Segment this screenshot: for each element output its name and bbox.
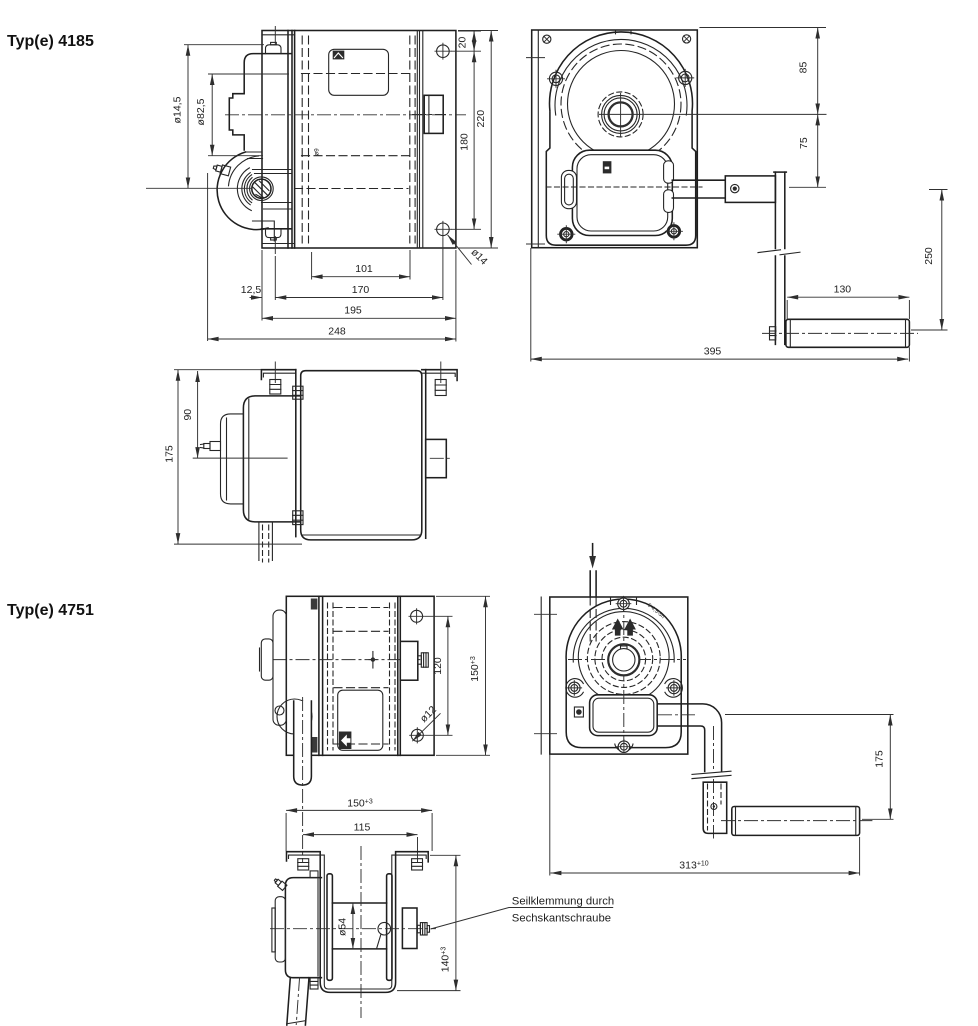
svg-text:101: 101: [355, 263, 373, 275]
svg-text:Sechskantschraube: Sechskantschraube: [512, 913, 611, 925]
svg-text:150+3: 150+3: [469, 656, 481, 682]
svg-text:Typ(e) 4185: Typ(e) 4185: [7, 33, 94, 50]
svg-text:ø9: ø9: [314, 148, 321, 156]
svg-text:20: 20: [457, 37, 469, 49]
svg-text:90: 90: [182, 409, 194, 421]
svg-text:ø14,5: ø14,5: [172, 96, 184, 123]
svg-text:248: 248: [328, 325, 346, 337]
svg-text:140+3: 140+3: [440, 947, 452, 973]
svg-text:ø82,5: ø82,5: [195, 98, 207, 125]
svg-text:313+10: 313+10: [679, 860, 709, 872]
svg-text:220: 220: [475, 110, 487, 128]
svg-text:250: 250: [923, 247, 935, 265]
svg-text:Seilklemmung durch: Seilklemmung durch: [512, 896, 614, 908]
svg-text:ø12: ø12: [418, 704, 439, 725]
svg-text:175: 175: [874, 750, 886, 768]
svg-text:12,5: 12,5: [241, 284, 262, 296]
svg-text:75: 75: [798, 137, 810, 149]
svg-text:ø14: ø14: [468, 246, 489, 267]
svg-text:195: 195: [344, 305, 362, 317]
svg-text:6-4,5-5h: 6-4,5-5h: [646, 602, 666, 620]
svg-text:120: 120: [432, 657, 444, 675]
svg-text:175: 175: [163, 445, 175, 463]
svg-text:395: 395: [704, 346, 722, 358]
svg-text:180: 180: [459, 133, 471, 151]
svg-text:ø54: ø54: [337, 918, 349, 936]
svg-text:150+3: 150+3: [347, 797, 373, 809]
svg-text:170: 170: [352, 284, 370, 296]
svg-text:85: 85: [798, 62, 810, 74]
svg-text:130: 130: [834, 284, 852, 296]
svg-text:Typ(e) 4751: Typ(e) 4751: [7, 602, 94, 619]
svg-text:115: 115: [354, 821, 371, 833]
